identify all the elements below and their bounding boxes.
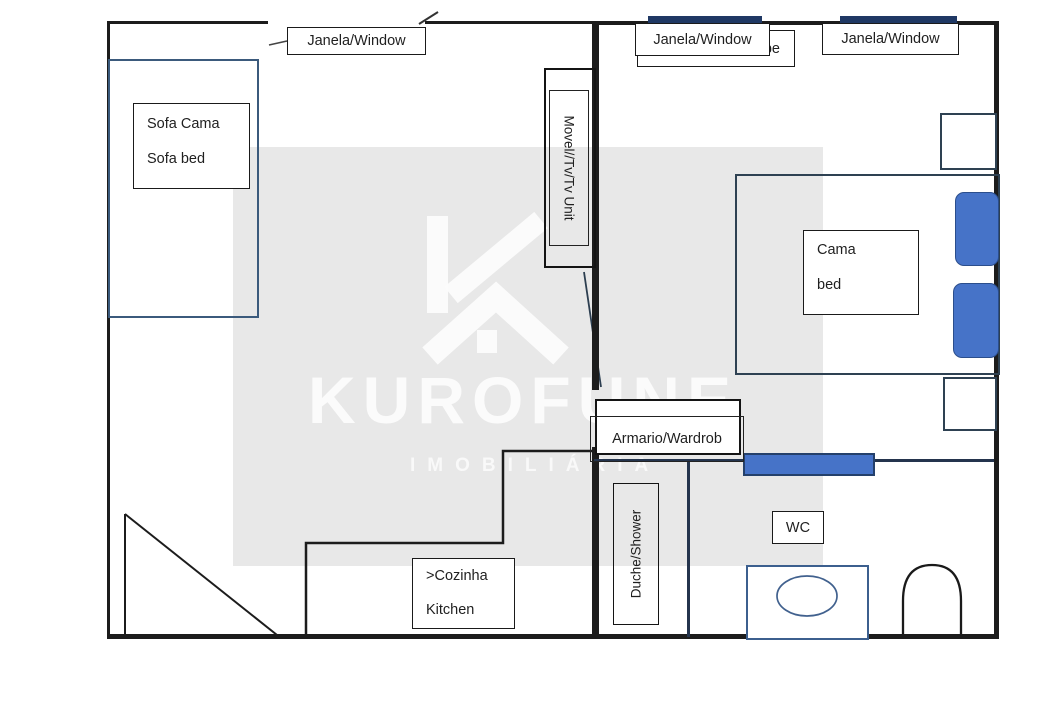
nightstand-bottom (943, 377, 997, 431)
wall-shower-divider (687, 461, 690, 637)
label-window-mid: Janela/Window (635, 23, 770, 56)
label-bed-line2: bed (817, 277, 841, 293)
nightstand-top (940, 113, 997, 170)
tv-unit-outer: Movel//Tv/Tv Unit (544, 68, 596, 268)
label-sofa: Sofa Cama Sofa bed (133, 103, 250, 189)
floor-plan: KUROFUNE IMOBILIÁRIA Movel//Tv/Tv Unit (0, 0, 1060, 717)
pillow-top (955, 192, 999, 266)
wall-top-left-a (107, 21, 268, 24)
window-marker-left (648, 16, 762, 23)
label-bed: Cama bed (803, 230, 919, 315)
tv-unit-label-box: Movel//Tv/Tv Unit (549, 90, 589, 246)
toilet-outline (746, 565, 869, 640)
label-bed-line1: Cama (817, 242, 856, 258)
label-sofa-line1: Sofa Cama (147, 116, 220, 132)
label-sofa-line2: Sofa bed (147, 151, 205, 167)
label-wardrobe: Armario/Wardrob (612, 431, 722, 447)
label-window-left: Janela/Window (287, 27, 426, 55)
label-wc: WC (772, 511, 824, 544)
wall-central-lower (592, 447, 599, 638)
shower-label-box: Duche/Shower (613, 483, 659, 625)
pillow-bottom (953, 283, 999, 358)
window-leader-line (269, 41, 287, 45)
window-marker-right (840, 16, 957, 23)
label-shower: Duche/Shower (629, 510, 644, 599)
label-window-right: Janela/Window (822, 23, 959, 55)
wardrobe-box-inner: Armario/Wardrob (590, 416, 744, 462)
label-kitchen-line2: Kitchen (426, 602, 474, 618)
wall-top-left-b (425, 21, 592, 24)
door-swing-diagonal (125, 514, 277, 635)
sink-shape (903, 565, 961, 637)
label-kitchen: >Cozinha Kitchen (412, 558, 515, 629)
bathroom-door-marker (743, 453, 875, 476)
tv-unit-label: Movel//Tv/Tv Unit (562, 115, 577, 220)
label-kitchen-line1: >Cozinha (426, 568, 488, 584)
